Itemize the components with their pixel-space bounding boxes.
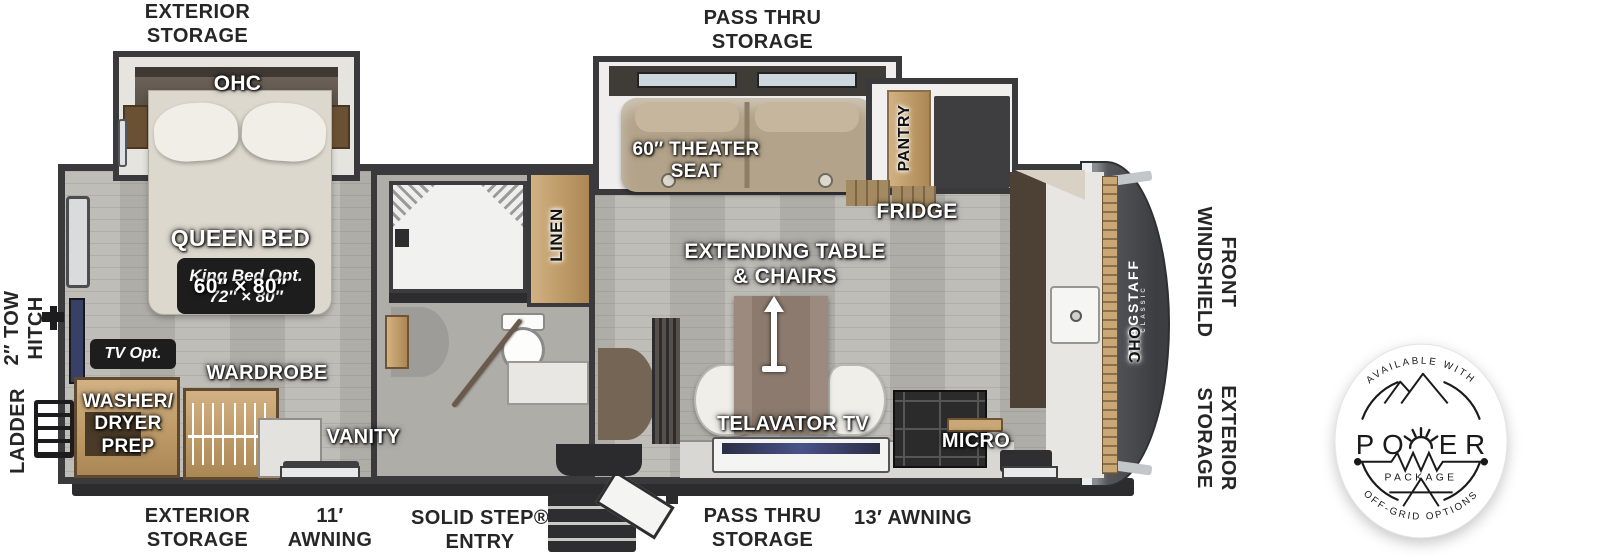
label-washer-dryer: WASHER/ DRYER PREP bbox=[64, 391, 192, 458]
theater-window-band bbox=[609, 66, 886, 96]
label-exterior-storage-bottom: EXTERIOR STORAGE bbox=[110, 504, 285, 553]
label-theater-seat: 60″ THEATER SEAT bbox=[606, 139, 786, 184]
theater-headrest-left bbox=[635, 102, 739, 132]
slide-window bbox=[757, 72, 857, 88]
label-solid-step-entry: SOLID STEP® ENTRY bbox=[385, 506, 575, 555]
badge-svg: AVAILABLE WITH PO ER bbox=[1332, 338, 1510, 544]
shower-head bbox=[395, 229, 409, 247]
slat-divider bbox=[652, 318, 680, 444]
wall-window bbox=[280, 466, 360, 479]
queen-bed-text: QUEEN BED bbox=[171, 225, 310, 251]
front-cabinet-band bbox=[1010, 172, 1046, 408]
telavator-tv-cabinet bbox=[712, 437, 890, 473]
label-pass-thru-storage-top: PASS THRU STORAGE bbox=[675, 6, 850, 55]
front-ohc-slats bbox=[1102, 176, 1118, 474]
label-tow-hitch: 2″ TOW HITCH bbox=[0, 268, 54, 388]
shower-glass-corner bbox=[393, 185, 435, 227]
label-ladder: LADDER bbox=[6, 376, 32, 486]
range-cooktop bbox=[893, 390, 987, 468]
wardrobe-hangers-left bbox=[192, 403, 228, 465]
cupholder bbox=[818, 173, 833, 188]
label-ohc-bed: OHC bbox=[150, 72, 325, 97]
tv-option-box: TV Opt. bbox=[90, 339, 176, 369]
label-front-windshield: FRONT WINDSHIELD bbox=[1186, 197, 1240, 347]
tv-screen bbox=[722, 443, 880, 454]
label-ohc-front: OHC bbox=[1124, 310, 1142, 380]
label-fridge: FRIDGE bbox=[858, 200, 976, 225]
extend-arrow bbox=[762, 296, 786, 372]
pantry-bumpout bbox=[866, 78, 1018, 194]
theater-headrest-right bbox=[755, 102, 859, 132]
shower bbox=[389, 181, 527, 293]
sink-faucet bbox=[1070, 310, 1082, 322]
slide-window bbox=[637, 72, 737, 88]
power-package-badge: AVAILABLE WITH PO ER bbox=[1332, 338, 1510, 544]
shower-threshold bbox=[389, 293, 527, 303]
entry-threshold bbox=[556, 444, 642, 476]
kitchen-peninsula bbox=[598, 348, 656, 440]
label-awning-13: 13′ AWNING bbox=[828, 506, 998, 530]
toilet-platform bbox=[507, 361, 589, 405]
label-awning-11: 11′ AWNING bbox=[265, 504, 395, 553]
bedroom-slide-window bbox=[118, 119, 127, 167]
label-telavator-tv: TELAVATOR TV bbox=[688, 413, 898, 437]
power-right-letters: ER bbox=[1439, 429, 1493, 460]
label-vanity: VANITY bbox=[316, 426, 411, 450]
label-exterior-storage-right: EXTERIOR STORAGE bbox=[1186, 373, 1240, 503]
fridge bbox=[934, 96, 1010, 188]
label-pass-thru-storage-bottom: PASS THRU STORAGE bbox=[675, 504, 850, 553]
label-extending-table: EXTENDING TABLE & CHAIRS bbox=[653, 240, 917, 290]
label-wardrobe: WARDROBE bbox=[192, 362, 342, 386]
pillow-right bbox=[240, 100, 328, 164]
queen-bed-size: 60″ × 80″ bbox=[194, 275, 287, 298]
shower-glass-corner bbox=[481, 185, 523, 227]
bath-sink-shelf bbox=[385, 315, 409, 369]
extend-arrow-base bbox=[762, 366, 786, 372]
label-micro: MICRO bbox=[926, 430, 1026, 454]
pillow-left bbox=[152, 100, 240, 164]
kitchen-sink bbox=[1050, 286, 1100, 344]
extend-arrow-shaft bbox=[771, 310, 777, 366]
label-linen: LINEN bbox=[547, 178, 567, 292]
rear-window bbox=[66, 196, 90, 288]
power-left-letters: PO bbox=[1356, 429, 1412, 460]
rear-tv bbox=[69, 298, 85, 384]
wall-window bbox=[1002, 466, 1058, 479]
label-exterior-storage-top: EXTERIOR STORAGE bbox=[110, 0, 285, 49]
label-queen-bed: QUEEN BED 60″ × 80″ bbox=[148, 203, 333, 300]
label-pantry: PANTRY bbox=[896, 78, 916, 198]
floorplan-canvas: EXTERIOR STORAGE PASS THRU STORAGE 2″ TO… bbox=[0, 0, 1600, 557]
